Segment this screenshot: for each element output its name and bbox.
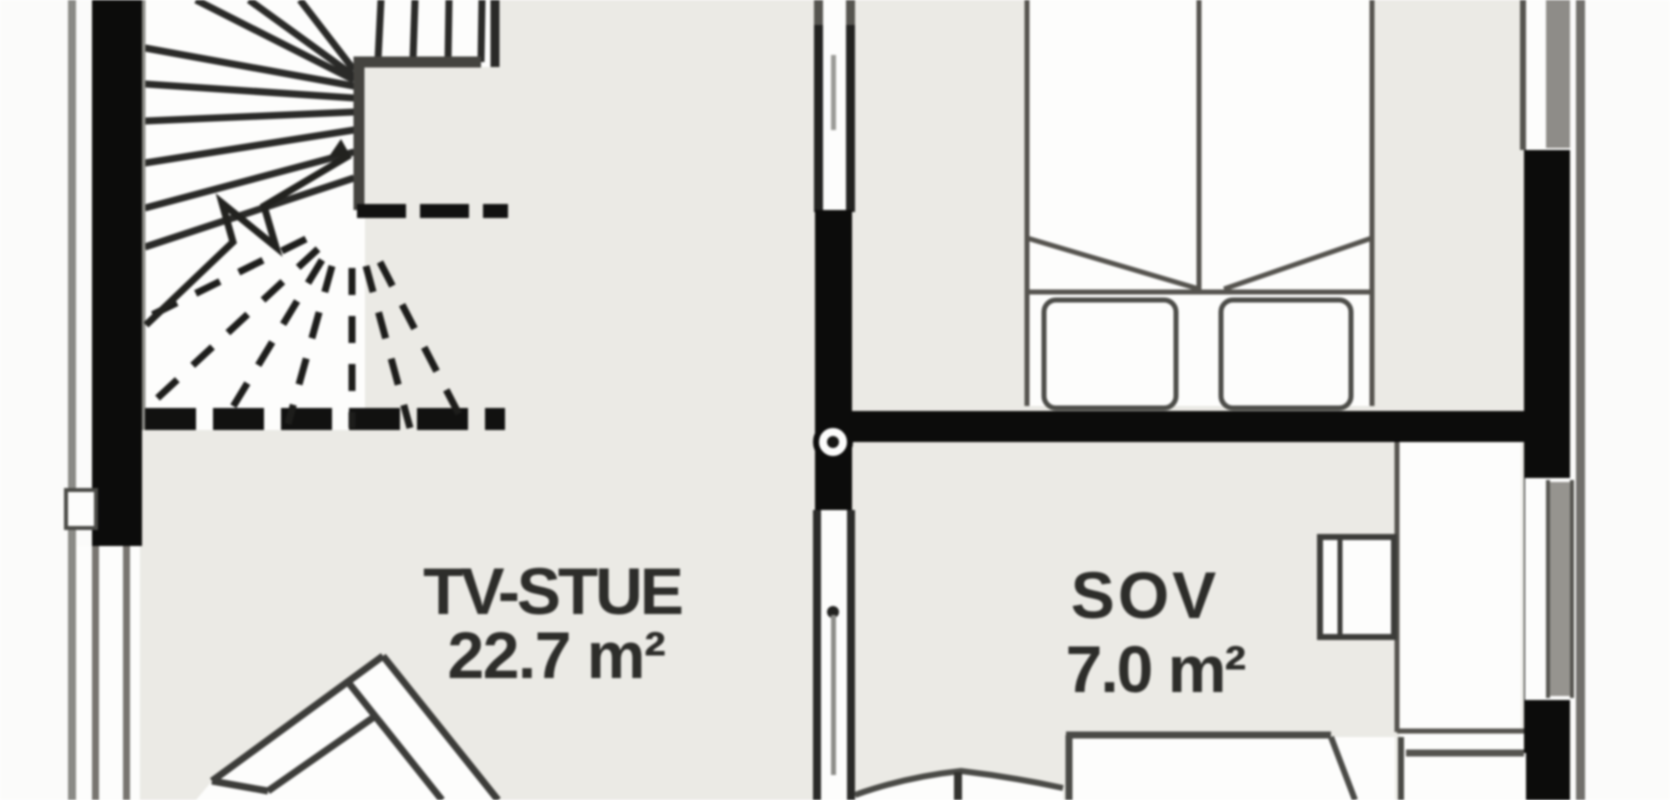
svg-text:22.7 m²: 22.7 m² bbox=[448, 618, 665, 692]
svg-text:TV-STUE: TV-STUE bbox=[423, 554, 682, 628]
svg-text:7.0 m²: 7.0 m² bbox=[1066, 632, 1246, 706]
svg-text:SOV: SOV bbox=[1071, 558, 1219, 632]
